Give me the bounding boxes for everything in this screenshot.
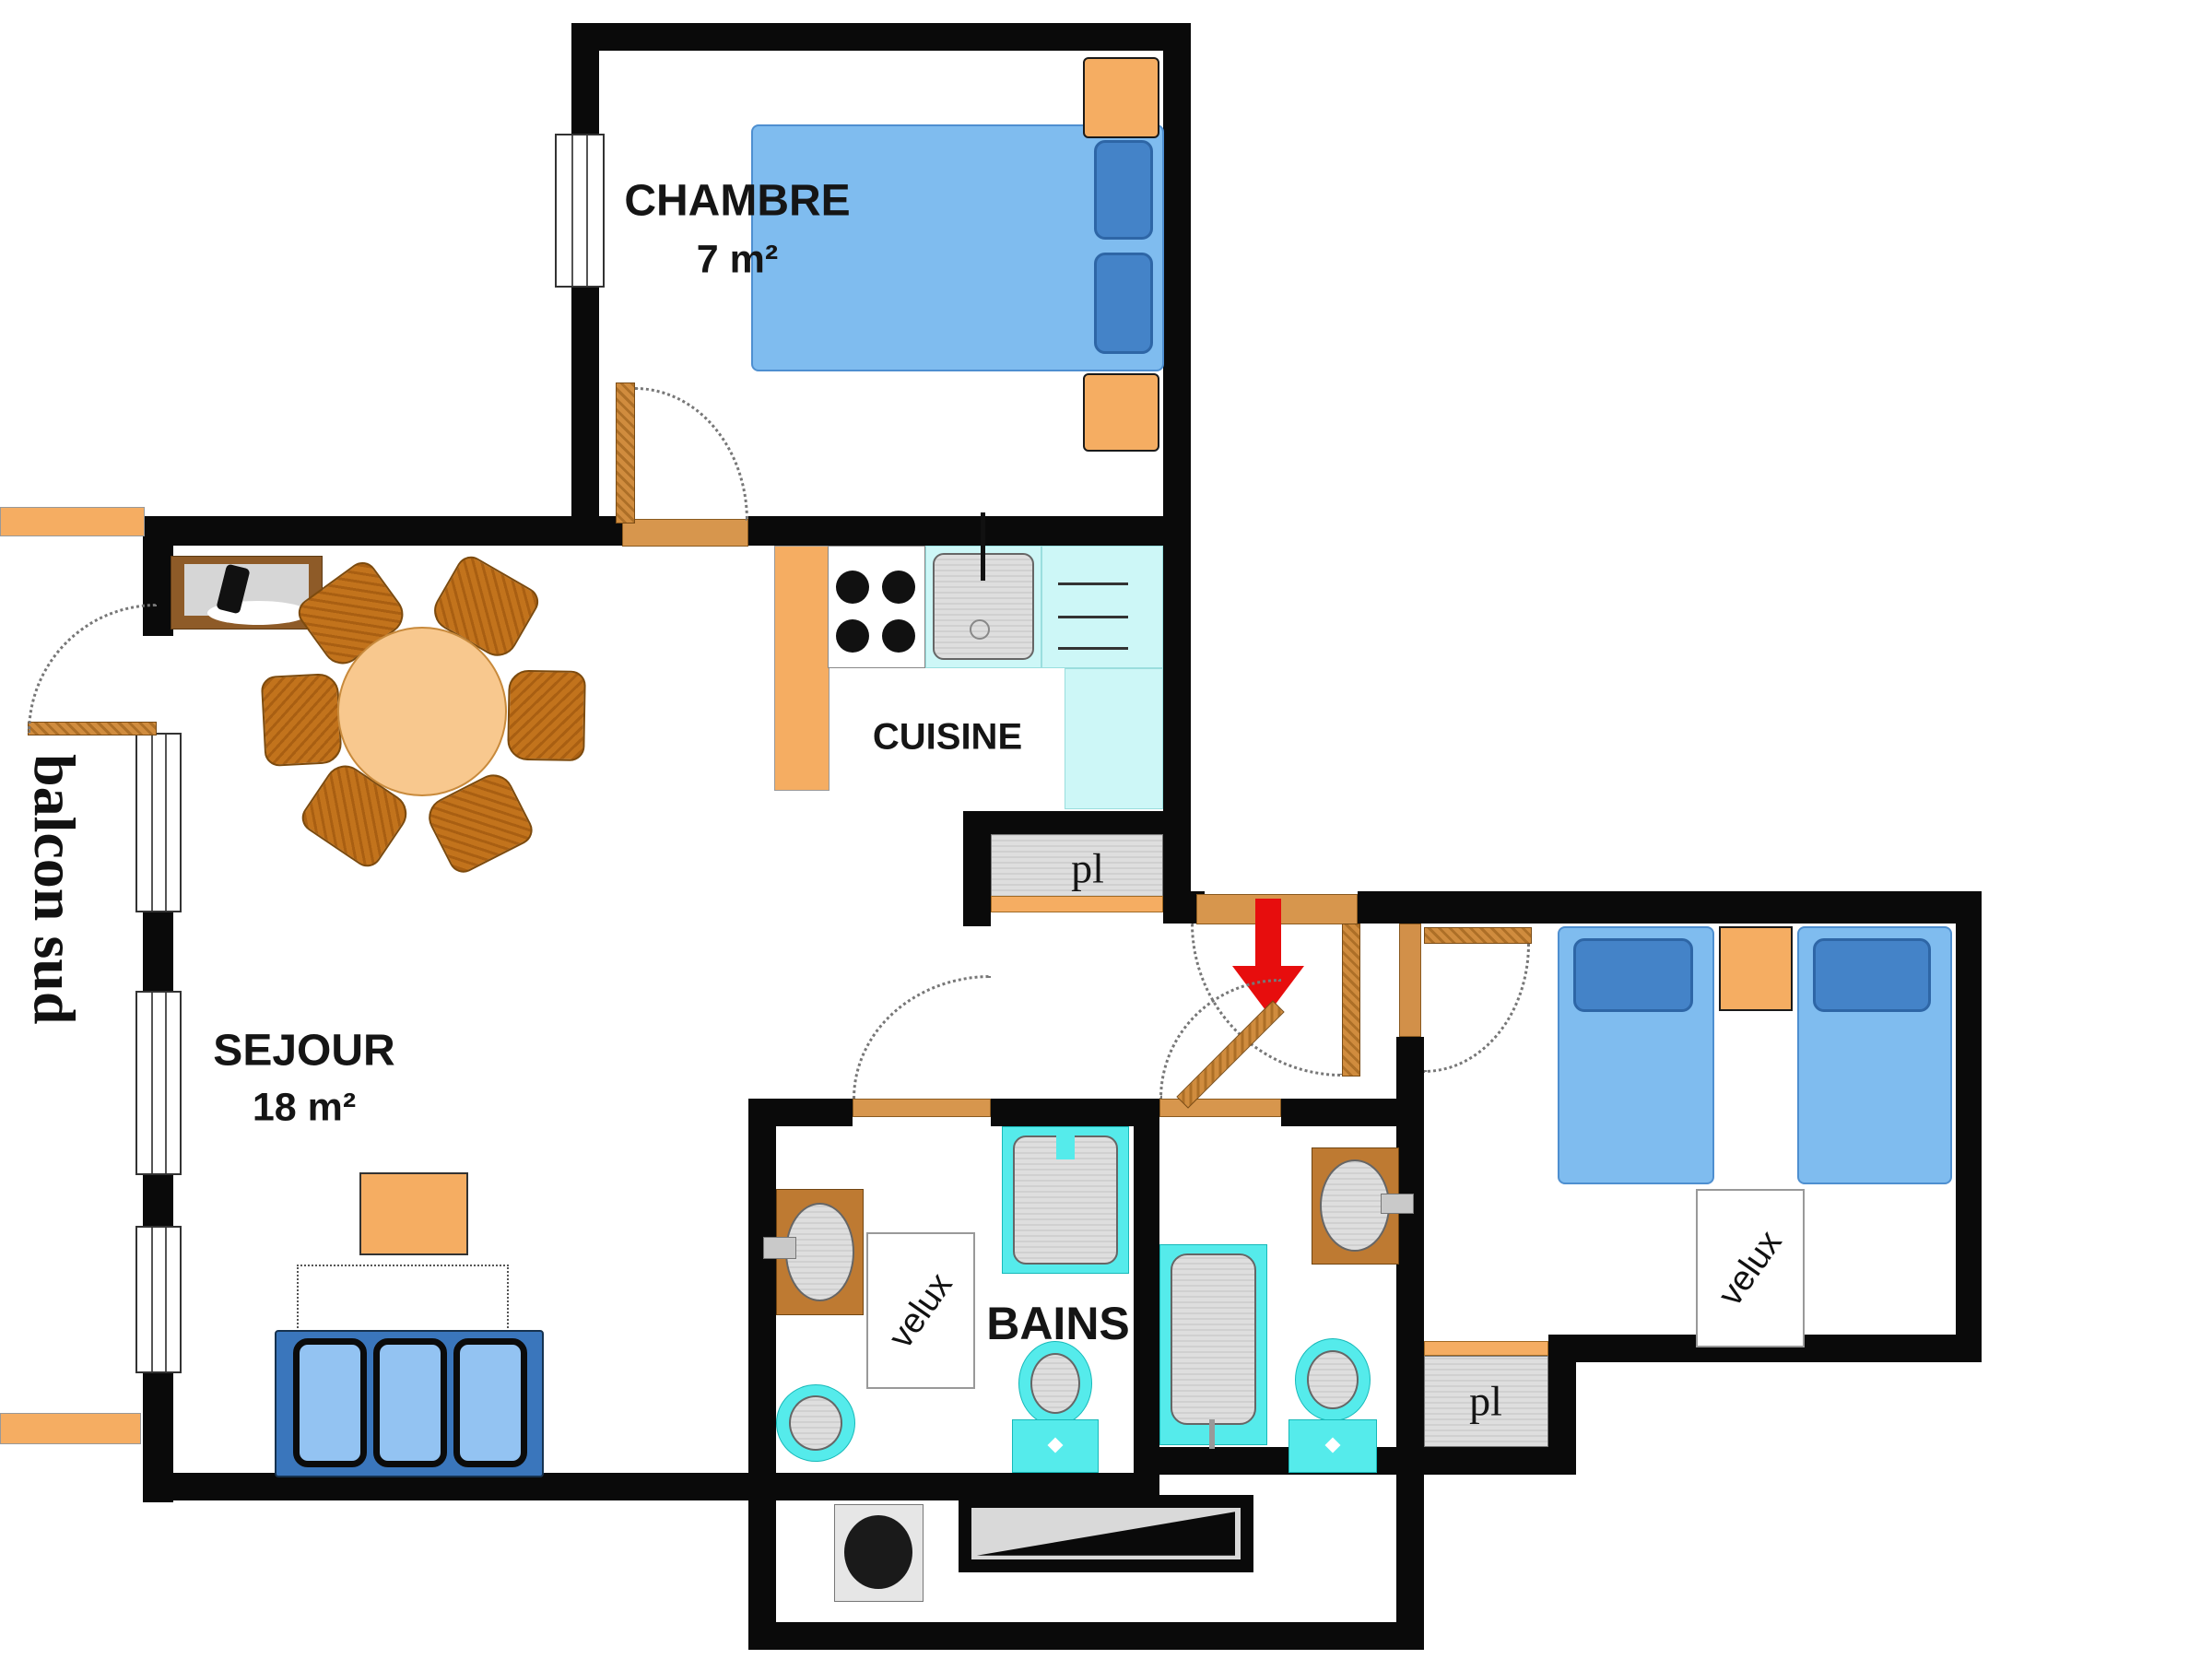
velux-skylight: velux <box>866 1232 975 1389</box>
stove-burner-icon <box>836 571 869 604</box>
toilet-seat <box>1307 1350 1359 1409</box>
wall <box>748 516 1191 546</box>
window <box>555 134 605 288</box>
sofa-cushion <box>293 1338 367 1467</box>
bathtub-drain-icon <box>1209 1419 1215 1449</box>
faucet-icon <box>763 1237 796 1259</box>
door-swing-arc <box>1159 979 1281 1099</box>
wall <box>748 1099 853 1126</box>
closet-pl-shelf <box>1424 1341 1548 1356</box>
sofa-cushion <box>373 1338 447 1467</box>
balcony-rail <box>0 1413 141 1444</box>
balcony-rail <box>0 507 145 536</box>
door-swing-arc <box>28 604 157 733</box>
closet-pl-shelf <box>991 896 1163 912</box>
door-sill <box>622 519 748 547</box>
door-leaf <box>1424 927 1532 944</box>
pillow <box>1094 253 1153 354</box>
wall <box>1134 1099 1159 1475</box>
door-leaf <box>1342 924 1360 1077</box>
dining-chair <box>507 670 586 761</box>
window <box>135 733 182 912</box>
toilet-seat <box>1030 1353 1080 1414</box>
bathtub-basin <box>1171 1253 1256 1425</box>
door-swing-arc <box>853 975 991 1099</box>
wall <box>143 1175 173 1226</box>
wall <box>1358 891 1982 924</box>
window <box>135 991 182 1175</box>
sofa-cushion <box>453 1338 527 1467</box>
wall <box>963 811 1191 837</box>
drawer-handle <box>1058 647 1128 650</box>
pillow <box>1573 938 1693 1012</box>
wall <box>571 23 1191 51</box>
balcony-label: balcon sud <box>20 754 88 1024</box>
chambre-label: CHAMBRE <box>624 176 850 227</box>
cuisine-label: CUISINE <box>873 717 1022 759</box>
velux-label: velux <box>881 1265 960 1355</box>
dining-table <box>337 627 507 796</box>
door-sill <box>1159 1099 1281 1117</box>
stove-burner-icon <box>882 571 915 604</box>
door-jamb <box>1399 924 1421 1037</box>
floor-plan: balcon sud CHAMBRE 7 m² CUISINE pl <box>0 0 2212 1659</box>
closet-pl-label: pl <box>1071 844 1104 893</box>
stove <box>828 546 925 668</box>
nightstand <box>1083 373 1159 452</box>
stairs <box>959 1495 1253 1572</box>
kitchen-counter <box>774 546 829 791</box>
coffee-table <box>359 1172 468 1255</box>
kitchen-counter <box>1065 668 1163 809</box>
drawer-handle <box>1058 616 1128 618</box>
nightstand <box>1083 57 1159 138</box>
sejour-label: SEJOUR <box>213 1026 394 1077</box>
door-swing-arc <box>635 387 748 521</box>
toilet-seat <box>789 1395 842 1451</box>
wall <box>143 912 173 991</box>
kitchen-counter-drawers <box>1041 546 1163 668</box>
sejour-area: 18 m² <box>253 1086 356 1131</box>
stove-burner-icon <box>882 619 915 653</box>
pillow <box>1094 140 1153 240</box>
wall <box>143 516 627 546</box>
door-sill <box>853 1099 991 1117</box>
nightstand <box>1719 926 1793 1011</box>
sink-drain-icon <box>970 619 990 640</box>
door-swing-arc <box>1424 944 1530 1073</box>
wall <box>1396 1037 1424 1650</box>
wall <box>748 1622 1424 1650</box>
faucet-icon <box>1381 1194 1414 1214</box>
velux-skylight: velux <box>1696 1189 1805 1347</box>
wall <box>1281 1099 1399 1126</box>
velux-label: velux <box>1711 1223 1790 1312</box>
wall <box>1163 23 1191 924</box>
door-leaf <box>616 382 635 524</box>
pillow <box>1813 938 1931 1012</box>
closet-pl-label: pl <box>1469 1377 1502 1426</box>
dining-chair <box>261 673 343 767</box>
entrance-arrow <box>1255 899 1281 968</box>
washbasin <box>1320 1159 1390 1252</box>
wall <box>748 1099 776 1500</box>
window <box>135 1226 182 1373</box>
wall <box>1956 891 1982 1362</box>
wall <box>963 811 991 926</box>
stove-burner-icon <box>836 619 869 653</box>
drawer-handle <box>1058 582 1128 585</box>
washing-machine-drum-icon <box>844 1515 912 1589</box>
shower-drain-icon <box>1056 1135 1075 1159</box>
sofa-bed-outline <box>297 1265 509 1339</box>
chambre-area: 7 m² <box>697 238 778 283</box>
stairs-wedge-icon <box>977 1510 1235 1558</box>
wall <box>1548 1335 1576 1447</box>
faucet-icon <box>981 512 985 581</box>
